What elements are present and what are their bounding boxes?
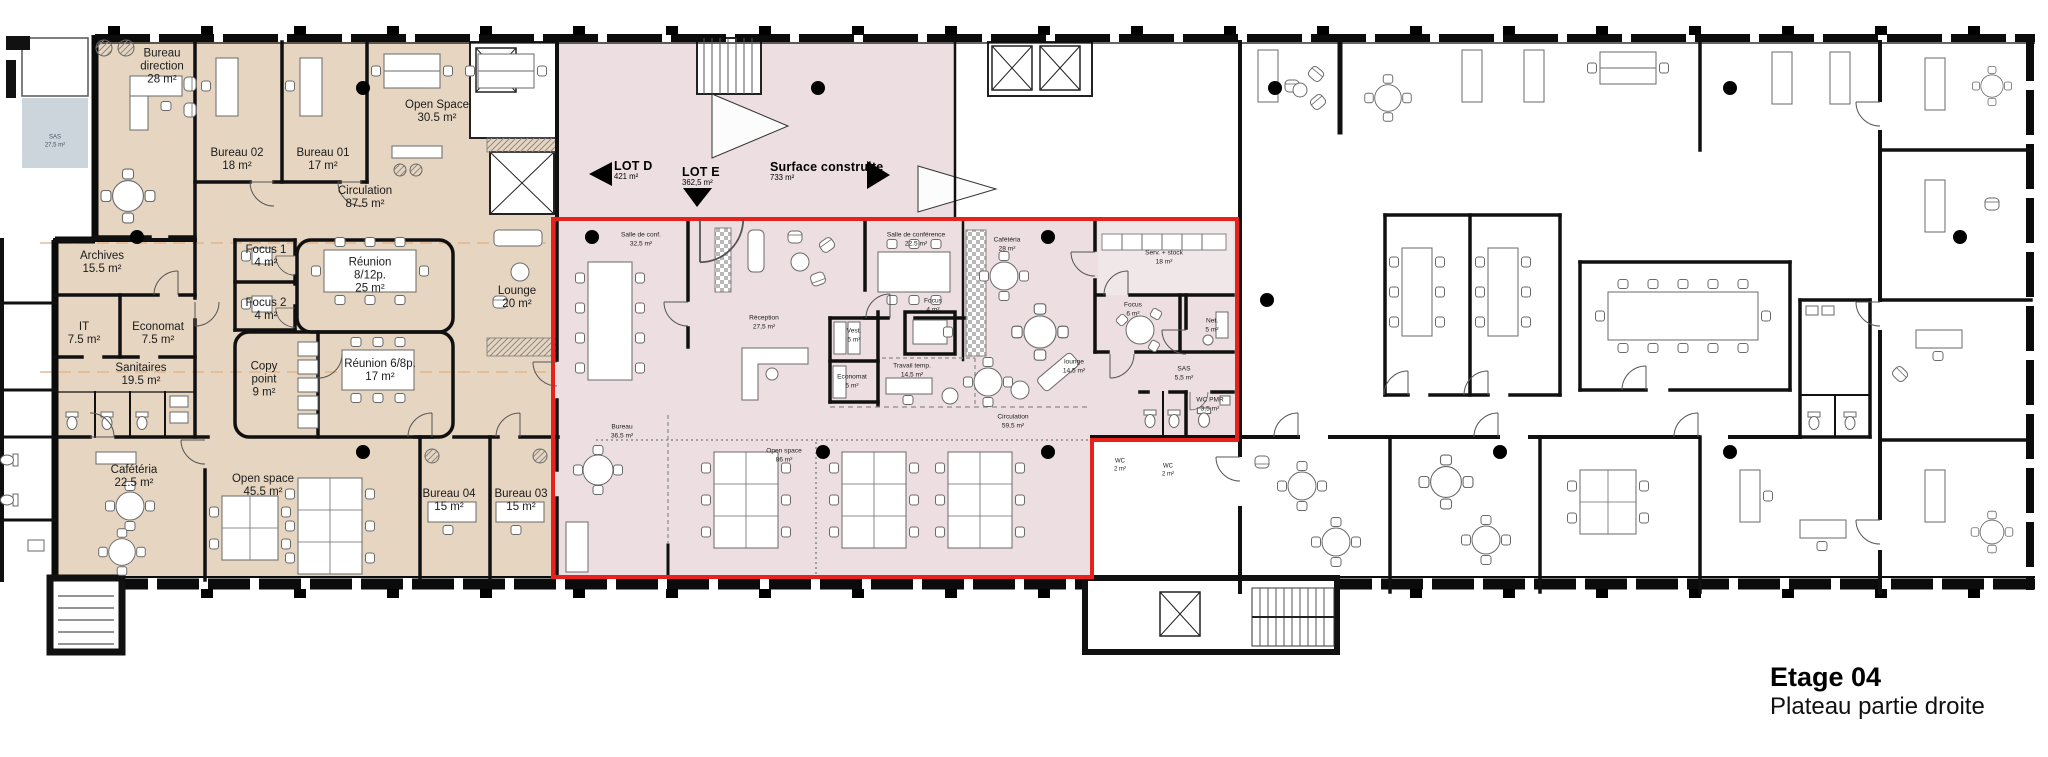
sas-entry-fill: [22, 98, 88, 168]
serv-stock-fill: [1098, 222, 1233, 295]
elevator-icon: [1160, 592, 1200, 636]
lot-d-label: LOT D 421 m²: [614, 160, 653, 182]
planter-strip: [487, 138, 557, 152]
floorplan-page: Bureau direction28 m² Bureau 0218 m² Bur…: [0, 0, 2048, 757]
elevator-icon: [1040, 46, 1080, 90]
stair-top-block: [697, 38, 761, 94]
dock-triangle: [918, 166, 996, 212]
elevator-icon: [992, 46, 1032, 90]
entry-room: [22, 38, 88, 96]
floor-title: Etage 04: [1770, 662, 1985, 693]
floor-subtitle: Plateau partie droite: [1770, 693, 1985, 722]
surface-construite-label: Surface construite 733 m²: [770, 161, 883, 183]
title-block: Etage 04 Plateau partie droite: [1770, 662, 1985, 722]
lot-e-label: LOT E 362,5 m²: [682, 166, 720, 188]
floor-plan-canvas: [0, 0, 2048, 757]
planter-strip: [487, 338, 557, 356]
